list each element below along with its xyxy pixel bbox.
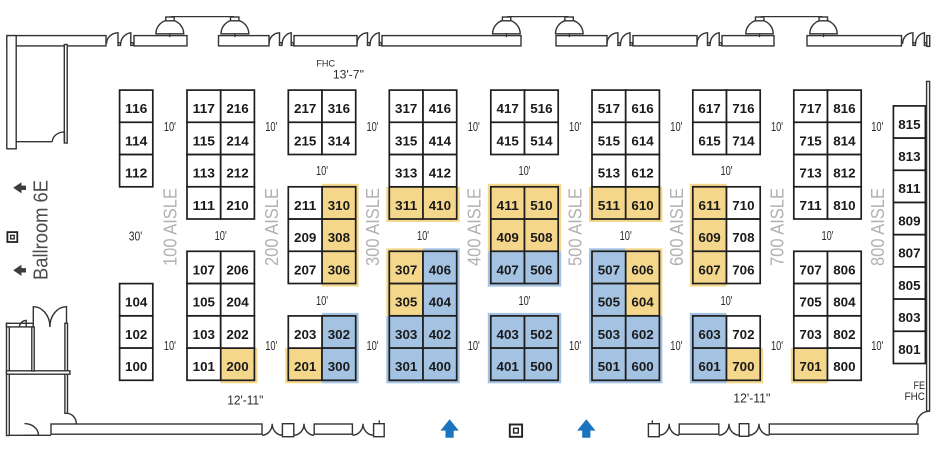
svg-text:609: 609	[698, 230, 720, 245]
svg-text:202: 202	[226, 327, 248, 342]
svg-text:212: 212	[226, 166, 248, 181]
svg-text:707: 707	[799, 262, 821, 277]
svg-text:316: 316	[328, 101, 350, 116]
svg-text:503: 503	[598, 327, 620, 342]
svg-text:715: 715	[799, 133, 821, 148]
svg-text:310: 310	[328, 198, 350, 213]
svg-text:500: 500	[530, 359, 552, 374]
svg-text:803: 803	[898, 310, 920, 325]
svg-text:204: 204	[226, 295, 249, 310]
svg-text:815: 815	[898, 117, 920, 132]
svg-text:409: 409	[497, 230, 519, 245]
svg-text:10': 10'	[316, 164, 328, 178]
svg-text:12'-11": 12'-11"	[733, 391, 770, 405]
svg-text:306: 306	[328, 262, 350, 277]
svg-text:10': 10'	[670, 120, 682, 134]
svg-text:301: 301	[395, 359, 417, 374]
svg-text:511: 511	[598, 198, 620, 213]
svg-text:308: 308	[328, 230, 350, 245]
svg-text:714: 714	[732, 133, 755, 148]
svg-text:713: 713	[799, 166, 821, 181]
svg-text:FHC: FHC	[316, 58, 335, 68]
svg-text:507: 507	[598, 262, 620, 277]
svg-text:617: 617	[698, 101, 720, 116]
svg-text:806: 806	[833, 262, 855, 277]
svg-text:606: 606	[631, 262, 653, 277]
svg-text:101: 101	[193, 359, 215, 374]
svg-text:415: 415	[497, 133, 519, 148]
svg-text:10': 10'	[871, 120, 883, 134]
svg-text:717: 717	[799, 101, 821, 116]
svg-text:414: 414	[429, 133, 452, 148]
svg-text:515: 515	[598, 133, 620, 148]
svg-text:10': 10'	[316, 294, 328, 308]
svg-text:701: 701	[799, 359, 821, 374]
svg-text:10': 10'	[468, 120, 480, 134]
svg-text:115: 115	[193, 133, 215, 148]
svg-text:214: 214	[226, 133, 249, 148]
svg-text:611: 611	[698, 198, 720, 213]
svg-text:10': 10'	[720, 164, 732, 178]
svg-text:317: 317	[395, 101, 417, 116]
svg-text:FHC: FHC	[905, 391, 926, 403]
svg-text:10': 10'	[518, 164, 530, 178]
svg-text:500 AISLE: 500 AISLE	[566, 188, 586, 266]
svg-text:502: 502	[530, 327, 552, 342]
svg-text:708: 708	[732, 230, 754, 245]
svg-text:12'-11": 12'-11"	[227, 393, 263, 407]
svg-text:516: 516	[530, 101, 552, 116]
svg-text:207: 207	[294, 262, 316, 277]
svg-text:800: 800	[833, 359, 855, 374]
svg-text:412: 412	[429, 166, 451, 181]
svg-text:217: 217	[294, 101, 316, 116]
svg-text:807: 807	[898, 246, 920, 261]
svg-text:802: 802	[833, 327, 855, 342]
svg-text:716: 716	[732, 101, 754, 116]
svg-text:315: 315	[395, 133, 417, 148]
svg-text:710: 710	[732, 198, 754, 213]
svg-text:513: 513	[598, 166, 620, 181]
svg-text:600: 600	[631, 359, 653, 374]
svg-text:111: 111	[193, 198, 215, 213]
svg-text:10': 10'	[164, 339, 176, 353]
svg-text:314: 314	[328, 133, 351, 148]
svg-text:705: 705	[799, 295, 821, 310]
svg-text:10': 10'	[265, 120, 277, 134]
svg-text:506: 506	[530, 262, 552, 277]
svg-text:311: 311	[395, 198, 417, 213]
svg-text:811: 811	[898, 181, 920, 196]
svg-text:10': 10'	[417, 229, 429, 243]
svg-text:107: 107	[193, 262, 215, 277]
svg-text:200: 200	[226, 359, 248, 374]
svg-text:10': 10'	[871, 339, 883, 353]
svg-text:508: 508	[530, 230, 552, 245]
svg-text:201: 201	[294, 359, 316, 374]
svg-text:300: 300	[328, 359, 350, 374]
svg-text:809: 809	[898, 213, 920, 228]
svg-text:812: 812	[833, 166, 855, 181]
svg-text:814: 814	[833, 133, 856, 148]
svg-text:114: 114	[125, 133, 148, 148]
svg-text:615: 615	[698, 133, 720, 148]
svg-text:100: 100	[125, 359, 147, 374]
svg-text:801: 801	[898, 342, 920, 357]
svg-text:411: 411	[497, 198, 519, 213]
svg-text:10': 10'	[468, 339, 480, 353]
svg-text:706: 706	[732, 262, 754, 277]
svg-text:702: 702	[732, 327, 754, 342]
svg-text:117: 117	[193, 101, 215, 116]
svg-text:113: 113	[193, 166, 215, 181]
svg-text:406: 406	[429, 262, 451, 277]
svg-text:510: 510	[530, 198, 552, 213]
svg-text:216: 216	[226, 101, 248, 116]
svg-text:711: 711	[799, 198, 821, 213]
svg-text:401: 401	[497, 359, 519, 374]
svg-text:Ballroom 6E: Ballroom 6E	[31, 180, 53, 280]
svg-text:610: 610	[631, 198, 653, 213]
svg-text:102: 102	[125, 327, 147, 342]
svg-text:210: 210	[226, 198, 248, 213]
svg-text:602: 602	[631, 327, 653, 342]
svg-text:501: 501	[598, 359, 620, 374]
svg-text:10': 10'	[821, 229, 833, 243]
svg-text:604: 604	[631, 295, 654, 310]
svg-text:104: 104	[125, 295, 148, 310]
svg-text:303: 303	[395, 327, 417, 342]
svg-text:614: 614	[631, 133, 654, 148]
svg-text:10': 10'	[366, 339, 378, 353]
svg-text:10': 10'	[620, 229, 632, 243]
svg-text:10': 10'	[215, 229, 227, 243]
svg-text:800 AISLE: 800 AISLE	[868, 188, 888, 266]
svg-text:616: 616	[631, 101, 653, 116]
svg-text:514: 514	[530, 133, 553, 148]
svg-text:703: 703	[799, 327, 821, 342]
svg-text:400: 400	[429, 359, 451, 374]
svg-text:10': 10'	[569, 120, 581, 134]
svg-text:307: 307	[395, 262, 417, 277]
svg-text:517: 517	[598, 101, 620, 116]
svg-text:112: 112	[125, 166, 147, 181]
svg-text:700: 700	[732, 359, 754, 374]
svg-text:300 AISLE: 300 AISLE	[363, 188, 383, 266]
svg-text:100 AISLE: 100 AISLE	[160, 188, 180, 266]
svg-text:607: 607	[698, 262, 720, 277]
svg-text:10': 10'	[569, 339, 581, 353]
svg-text:804: 804	[833, 295, 856, 310]
svg-text:10': 10'	[518, 294, 530, 308]
svg-text:403: 403	[497, 327, 519, 342]
svg-text:612: 612	[631, 166, 653, 181]
svg-text:302: 302	[328, 327, 350, 342]
svg-text:417: 417	[497, 101, 519, 116]
svg-text:10': 10'	[771, 120, 783, 134]
svg-text:407: 407	[497, 262, 519, 277]
svg-text:810: 810	[833, 198, 855, 213]
svg-text:103: 103	[193, 327, 215, 342]
svg-text:600 AISLE: 600 AISLE	[667, 188, 687, 266]
svg-text:13'-7": 13'-7"	[333, 68, 364, 82]
svg-text:209: 209	[294, 230, 316, 245]
svg-text:505: 505	[598, 295, 620, 310]
svg-text:700 AISLE: 700 AISLE	[768, 188, 788, 266]
svg-text:313: 313	[395, 166, 417, 181]
svg-text:813: 813	[898, 149, 920, 164]
svg-text:211: 211	[294, 198, 316, 213]
svg-text:10': 10'	[771, 339, 783, 353]
svg-text:105: 105	[193, 295, 215, 310]
svg-text:203: 203	[294, 327, 316, 342]
svg-text:206: 206	[226, 262, 248, 277]
svg-text:402: 402	[429, 327, 451, 342]
svg-text:404: 404	[429, 295, 452, 310]
svg-text:200 AISLE: 200 AISLE	[262, 188, 282, 266]
svg-text:816: 816	[833, 101, 855, 116]
svg-text:10': 10'	[265, 339, 277, 353]
svg-text:400 AISLE: 400 AISLE	[464, 188, 484, 266]
svg-text:305: 305	[395, 295, 417, 310]
svg-text:30': 30'	[129, 229, 143, 243]
svg-text:116: 116	[125, 101, 147, 116]
svg-text:805: 805	[898, 278, 920, 293]
svg-text:410: 410	[429, 198, 451, 213]
svg-text:416: 416	[429, 101, 451, 116]
svg-text:601: 601	[698, 359, 720, 374]
svg-text:10': 10'	[720, 294, 732, 308]
svg-text:10': 10'	[670, 339, 682, 353]
svg-text:10': 10'	[366, 120, 378, 134]
svg-text:10': 10'	[164, 120, 176, 134]
svg-text:603: 603	[698, 327, 720, 342]
svg-text:215: 215	[294, 133, 316, 148]
